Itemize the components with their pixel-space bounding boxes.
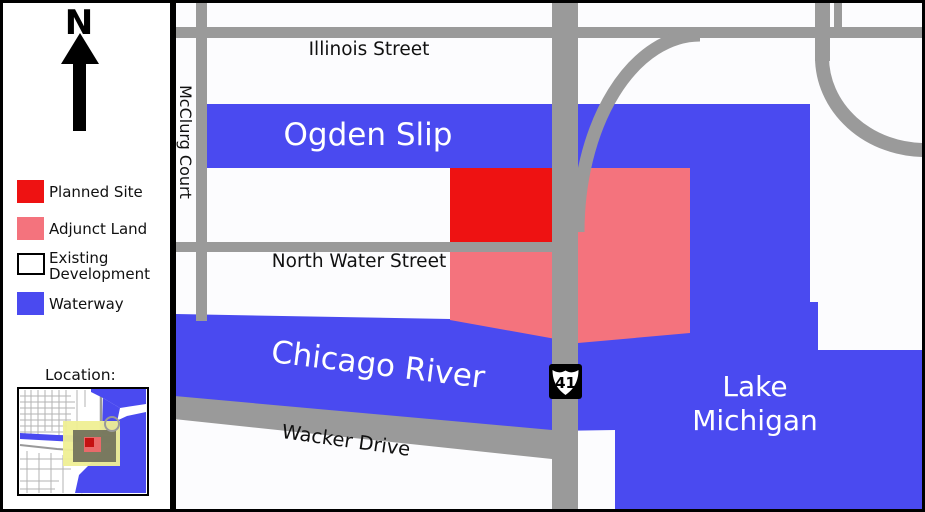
adjunct-land-swatch (17, 217, 44, 240)
legend-label: Adjunct Land (49, 221, 147, 237)
main-map: 41 Illinois Street McClurg Court North W… (176, 3, 922, 509)
legend-label: Existing Development (49, 250, 150, 282)
location-inset-map (17, 387, 149, 496)
ogden-slip-label: Ogden Slip (218, 117, 518, 153)
location-label: Location: (45, 366, 116, 384)
existing-development-swatch (17, 253, 45, 275)
planned-site-shape (450, 168, 552, 245)
lake-michigan-label-line2: Michigan (655, 404, 855, 438)
mcclurg-court-label: McClurg Court (176, 85, 195, 199)
north-water-street-label: North Water Street (234, 251, 484, 272)
top-right-curve-road (822, 57, 922, 150)
lake-michigan-label: Lake Michigan (655, 370, 855, 438)
route-shield-number: 41 (555, 374, 576, 392)
inset-site-marker-core (85, 438, 94, 447)
planned-site-swatch (17, 180, 44, 203)
legend-label: Waterway (49, 296, 124, 312)
illinois-street-label: Illinois Street (269, 39, 469, 60)
top-right-street (815, 3, 830, 61)
north-arrow-icon (58, 33, 102, 133)
mcclurg-court-road (196, 3, 207, 321)
waterway-swatch (17, 292, 44, 315)
lake-shore-drive-road (552, 3, 578, 509)
legend-label: Planned Site (49, 184, 143, 200)
illinois-street-road (176, 27, 922, 38)
map-figure: { "colors": { "waterway": "#4A4AF0", "pl… (0, 0, 925, 512)
us-route-41-shield: 41 (549, 364, 582, 399)
lake-michigan-label-line1: Lake (655, 370, 855, 404)
legend-sidebar: N Planned Site Adjunct Land Existing Dev… (3, 3, 170, 509)
inset-map-graphic (19, 389, 147, 494)
legend-label-line2: Development (49, 265, 150, 283)
top-right-street-stub (834, 3, 842, 28)
